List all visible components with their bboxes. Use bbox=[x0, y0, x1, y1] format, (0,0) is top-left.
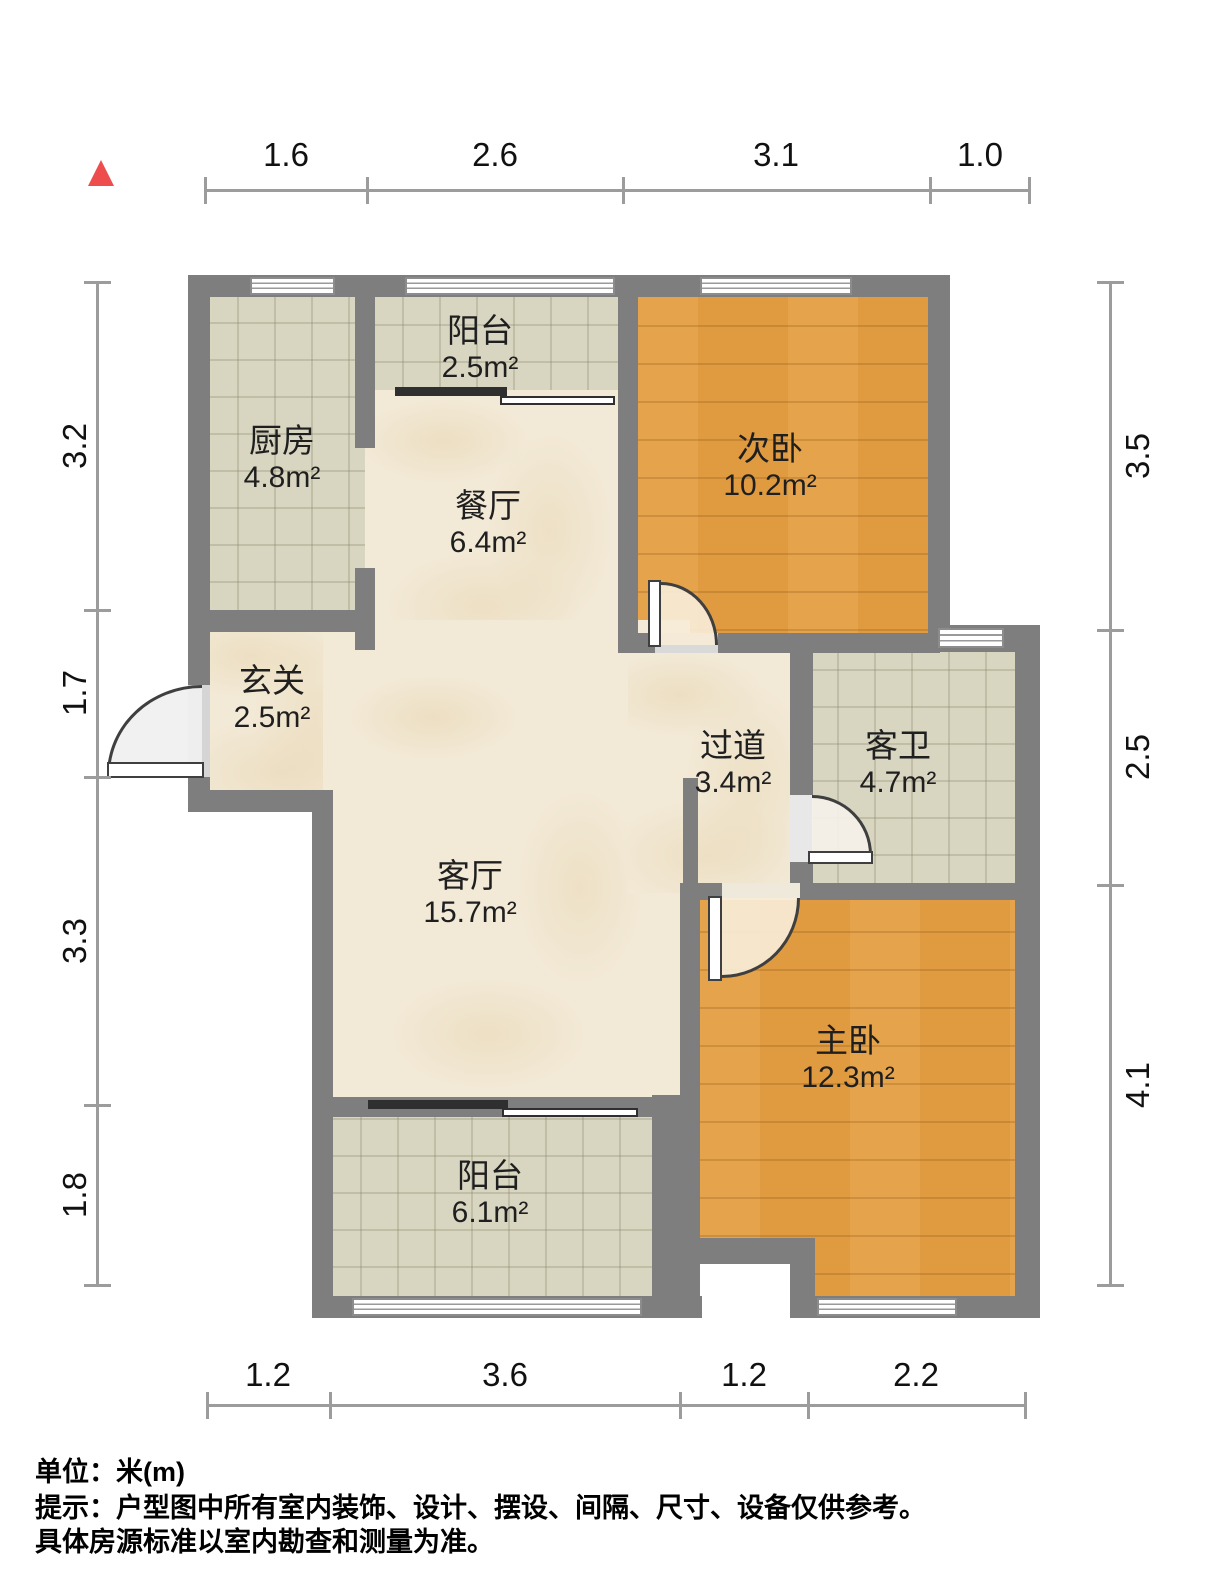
sliding-door-living-balcony-panel-icon bbox=[502, 1108, 638, 1117]
room-label-balcony-top: 阳台 2.5m² bbox=[390, 312, 570, 386]
room-area: 2.5m² bbox=[182, 700, 362, 736]
dimension-label-top: 2.6 bbox=[455, 136, 535, 168]
dimension-label-left: 1.8 bbox=[56, 1155, 88, 1235]
wall-kitchen-bottom bbox=[188, 610, 375, 632]
room-label-balcony-bottom: 阳台 6.1m² bbox=[400, 1157, 580, 1231]
dimension-label-bottom: 1.2 bbox=[704, 1356, 784, 1388]
dimension-tick bbox=[366, 177, 369, 204]
dimension-label-bottom: 2.2 bbox=[876, 1356, 956, 1388]
room-area: 4.7m² bbox=[808, 765, 988, 801]
sliding-door-living-balcony-panel-icon bbox=[368, 1100, 508, 1109]
room-name: 阳台 bbox=[400, 1157, 580, 1195]
dimension-tick bbox=[204, 177, 207, 204]
wall-kitchen-right-lower bbox=[355, 568, 375, 650]
room-label-bathroom: 客卫 4.7m² bbox=[808, 727, 988, 801]
window-balcony-top-icon bbox=[405, 277, 615, 295]
wall-right-lower bbox=[1015, 625, 1040, 1318]
dimension-tick bbox=[1028, 177, 1031, 204]
dimension-label-bottom: 3.6 bbox=[465, 1356, 545, 1388]
dimension-tick bbox=[1097, 281, 1124, 284]
sliding-door-dining-balcony-panel-icon bbox=[395, 387, 507, 396]
floor-plan: 阳台 2.5m² 厨房 4.8m² 餐厅 6.4m² 次卧 10.2m² 玄关 … bbox=[0, 0, 1230, 1595]
dimension-tick bbox=[679, 1392, 682, 1419]
dimension-label-top: 1.0 bbox=[940, 136, 1020, 168]
room-label-dining: 餐厅 6.4m² bbox=[398, 487, 578, 561]
dimension-tick bbox=[1024, 1392, 1027, 1419]
bedroom-second-door-leaf-icon bbox=[648, 580, 661, 647]
room-area: 2.5m² bbox=[390, 350, 570, 386]
room-name: 客厅 bbox=[380, 857, 560, 895]
window-balcony-bottom-icon bbox=[352, 1298, 642, 1316]
dimension-tick bbox=[84, 281, 111, 284]
room-label-entry: 玄关 2.5m² bbox=[182, 662, 362, 736]
dimension-tick bbox=[622, 177, 625, 204]
dimension-tick bbox=[929, 177, 932, 204]
window-master-icon bbox=[817, 1298, 957, 1316]
room-name: 次卧 bbox=[680, 430, 860, 468]
room-name: 主卧 bbox=[758, 1022, 938, 1060]
dimension-tick bbox=[84, 1284, 111, 1287]
entrance-door-leaf-icon bbox=[107, 762, 204, 778]
dimension-tick bbox=[1097, 884, 1124, 887]
room-area: 6.4m² bbox=[398, 525, 578, 561]
footer-note-text: 具体房源标准以室内勘查和测量为准。 bbox=[35, 1520, 494, 1559]
room-area: 6.1m² bbox=[400, 1195, 580, 1231]
dimension-tick bbox=[1097, 629, 1124, 632]
wall-notch-top bbox=[700, 1238, 790, 1264]
room-label-kitchen: 厨房 4.8m² bbox=[192, 422, 372, 496]
window-bathroom-icon bbox=[938, 628, 1004, 648]
room-area: 4.8m² bbox=[192, 460, 372, 496]
room-label-bedroom-master: 主卧 12.3m² bbox=[758, 1022, 938, 1096]
wall-bedroom-second-right bbox=[928, 275, 950, 652]
room-area: 10.2m² bbox=[680, 468, 860, 504]
dimension-label-right: 3.5 bbox=[1119, 416, 1151, 496]
dimension-label-bottom: 1.2 bbox=[228, 1356, 308, 1388]
room-area: 12.3m² bbox=[758, 1060, 938, 1096]
room-label-living: 客厅 15.7m² bbox=[380, 857, 560, 931]
room-name: 过道 bbox=[643, 727, 823, 765]
dimension-line-right bbox=[1109, 282, 1112, 1285]
dimension-label-top: 3.1 bbox=[736, 136, 816, 168]
wall-left-lower bbox=[312, 790, 333, 1318]
wall-dining-bedroom-divider bbox=[618, 297, 638, 653]
room-area: 3.4m² bbox=[643, 765, 823, 801]
dimension-tick bbox=[807, 1392, 810, 1419]
dimension-label-left: 3.3 bbox=[56, 901, 88, 981]
sliding-door-dining-balcony-panel-icon bbox=[500, 396, 615, 405]
window-bedroom-second-icon bbox=[700, 277, 852, 295]
dimension-tick bbox=[1097, 1284, 1124, 1287]
dimension-label-left: 1.7 bbox=[56, 653, 88, 733]
dimension-tick bbox=[84, 1104, 111, 1107]
room-area: 15.7m² bbox=[380, 895, 560, 931]
dimension-label-left: 3.2 bbox=[56, 406, 88, 486]
room-name: 阳台 bbox=[390, 312, 570, 350]
dimension-label-right: 2.5 bbox=[1119, 717, 1151, 797]
room-name: 餐厅 bbox=[398, 487, 578, 525]
room-name: 客卫 bbox=[808, 727, 988, 765]
footer-unit-text: 单位：米(m) bbox=[35, 1450, 185, 1489]
room-label-hallway: 过道 3.4m² bbox=[643, 727, 823, 801]
exterior-notch bbox=[700, 1264, 790, 1318]
dimension-line-top bbox=[205, 189, 1030, 192]
room-label-bedroom-second: 次卧 10.2m² bbox=[680, 430, 860, 504]
bathroom-door-leaf-icon bbox=[808, 851, 873, 864]
dimension-tick bbox=[329, 1392, 332, 1419]
dimension-tick bbox=[206, 1392, 209, 1419]
dimension-line-left bbox=[96, 282, 99, 1285]
north-indicator-icon bbox=[88, 160, 114, 186]
room-name: 玄关 bbox=[182, 662, 362, 700]
dimension-label-right: 4.1 bbox=[1119, 1045, 1151, 1125]
dimension-tick bbox=[84, 776, 111, 779]
window-kitchen-icon bbox=[250, 277, 335, 295]
master-door-leaf-icon bbox=[708, 896, 722, 981]
room-name: 厨房 bbox=[192, 422, 372, 460]
dimension-label-top: 1.6 bbox=[246, 136, 326, 168]
dimension-tick bbox=[84, 609, 111, 612]
wall-master-left bbox=[680, 883, 700, 1243]
